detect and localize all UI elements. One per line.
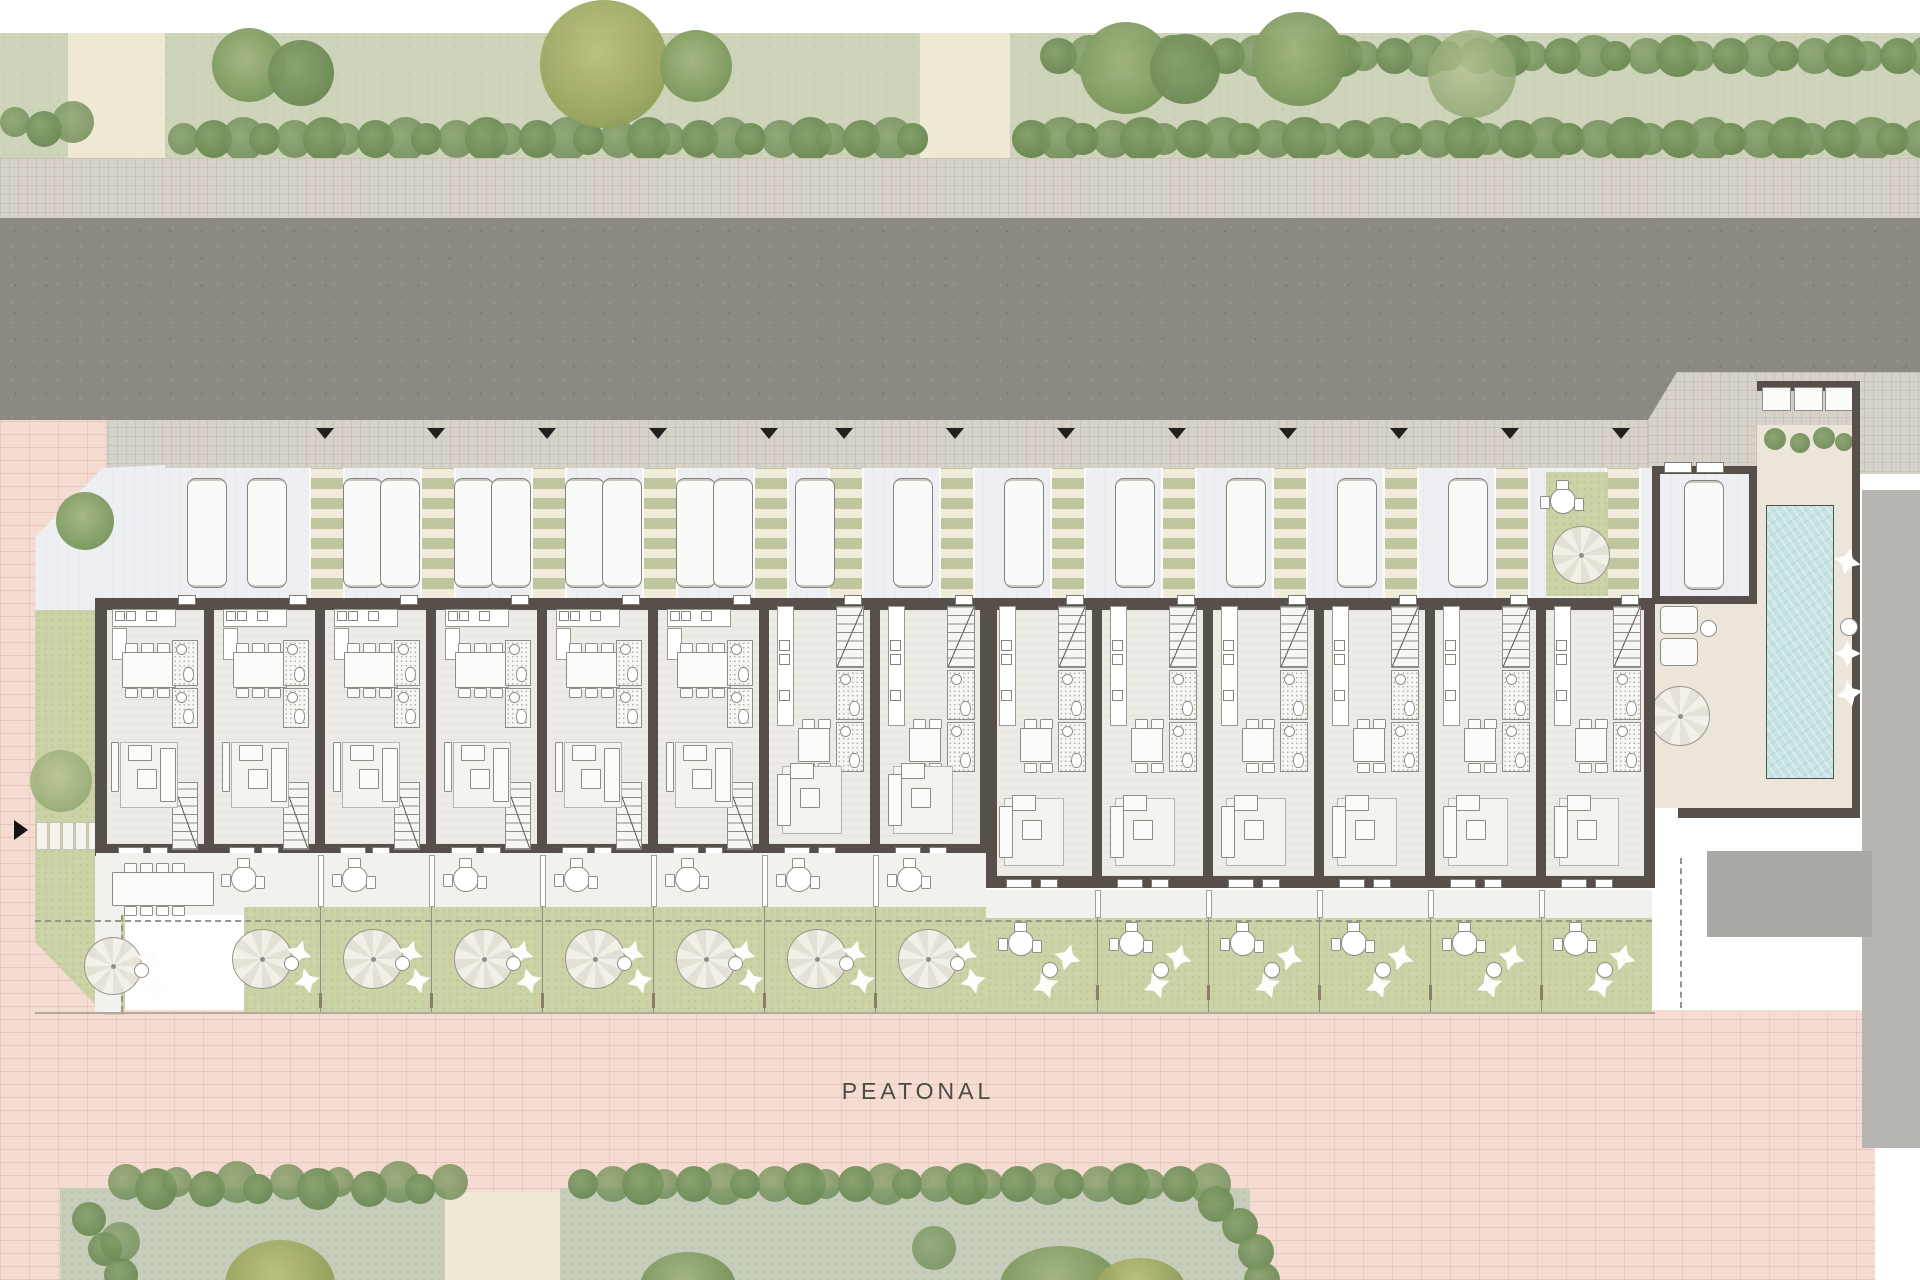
chair xyxy=(157,688,170,698)
side-lot xyxy=(1862,490,1920,1148)
chair xyxy=(124,863,137,873)
chair xyxy=(601,643,614,653)
chair xyxy=(1151,763,1164,773)
chair xyxy=(998,938,1008,951)
chair xyxy=(237,858,250,868)
chair xyxy=(712,643,725,653)
stepping-stone xyxy=(75,822,87,850)
terrace-divider xyxy=(1539,890,1545,918)
kitchen-counter xyxy=(999,606,1016,726)
hedge-bush xyxy=(1768,41,1799,72)
chair xyxy=(1254,940,1264,953)
basin xyxy=(287,644,298,655)
bistro-table xyxy=(342,866,368,892)
appliance xyxy=(779,690,790,701)
chair xyxy=(921,876,931,889)
chair xyxy=(366,876,376,889)
parasol xyxy=(676,929,736,989)
appliance xyxy=(890,690,901,701)
kitchen-counter xyxy=(1554,606,1571,726)
fence-post xyxy=(319,993,322,1008)
parking-walkway xyxy=(420,468,456,598)
chair xyxy=(1014,922,1027,932)
swimming-pool xyxy=(1766,505,1834,779)
entrance-marker-icon xyxy=(760,428,778,439)
chair xyxy=(1556,480,1569,490)
parasol xyxy=(1650,686,1710,746)
coffee-table xyxy=(581,769,601,789)
dining-table xyxy=(1242,728,1274,762)
hedge-bush xyxy=(1516,41,1547,72)
kitchen-counter xyxy=(1221,606,1238,726)
window xyxy=(1484,879,1502,888)
fence-post xyxy=(1540,985,1543,1000)
tv-sideboard xyxy=(444,742,452,792)
shrub xyxy=(1813,427,1835,449)
sink xyxy=(1223,654,1234,665)
north-footpath xyxy=(68,33,165,160)
parked-car xyxy=(1115,478,1155,588)
sink xyxy=(681,611,691,621)
bistro-table xyxy=(1119,930,1145,956)
parasol xyxy=(343,929,403,989)
chair xyxy=(236,688,249,698)
tree xyxy=(540,0,668,128)
ottoman xyxy=(950,956,965,971)
chair xyxy=(1540,496,1550,509)
chair xyxy=(156,906,169,916)
fence-post xyxy=(652,993,655,1008)
armchair xyxy=(790,763,814,779)
south-sidewalk xyxy=(0,418,1920,474)
window xyxy=(1117,879,1143,888)
cooktop xyxy=(1223,640,1234,651)
chair xyxy=(157,643,170,653)
basin xyxy=(176,692,187,703)
kitchen-counter xyxy=(1332,606,1349,726)
parked-car xyxy=(454,478,494,588)
party-wall xyxy=(1203,610,1213,876)
chair xyxy=(585,643,598,653)
entry-door xyxy=(622,595,640,605)
chair xyxy=(1365,940,1375,953)
toilet xyxy=(294,709,305,724)
chair xyxy=(802,719,815,729)
shrub xyxy=(1790,433,1810,453)
street-asphalt xyxy=(0,218,1920,420)
chair xyxy=(1135,719,1148,729)
chair xyxy=(268,643,281,653)
basin xyxy=(509,692,520,703)
chair xyxy=(443,874,453,887)
ottoman xyxy=(1042,962,1058,978)
ottoman xyxy=(839,956,854,971)
entrance-marker-icon xyxy=(316,428,334,439)
chair xyxy=(1331,938,1341,951)
chair xyxy=(252,688,265,698)
chair xyxy=(818,719,831,729)
parking-walkway xyxy=(531,468,567,598)
dining-table xyxy=(122,652,176,688)
sink xyxy=(126,611,136,621)
party-wall xyxy=(1425,610,1435,876)
stepping-stone xyxy=(49,822,61,850)
parked-car xyxy=(1004,478,1044,588)
stair-diagonal xyxy=(837,607,863,667)
chair xyxy=(810,876,820,889)
party-wall xyxy=(759,610,769,844)
sofa xyxy=(1443,806,1457,858)
sofa xyxy=(604,748,620,802)
chair xyxy=(363,643,376,653)
basin xyxy=(840,674,851,685)
toilet xyxy=(738,709,749,724)
coffee-table xyxy=(359,769,379,789)
dining-table xyxy=(1020,728,1052,762)
parked-car xyxy=(380,478,420,588)
stair-diagonal xyxy=(1170,607,1196,667)
parked-car xyxy=(247,478,287,588)
outdoor-dining-table xyxy=(112,872,214,906)
terrace-divider xyxy=(429,855,435,907)
appliance xyxy=(1001,690,1012,701)
party-wall xyxy=(315,610,325,844)
ramp xyxy=(1707,851,1872,937)
coffee-table xyxy=(248,769,268,789)
appliance xyxy=(1223,690,1234,701)
basin xyxy=(1062,674,1073,685)
site-plan: PEATONAL xyxy=(0,0,1920,1280)
chair xyxy=(477,876,487,889)
entrance-marker-icon xyxy=(946,428,964,439)
chair xyxy=(1553,938,1563,951)
basin xyxy=(398,692,409,703)
bistro-table xyxy=(1008,930,1034,956)
tv-sideboard xyxy=(111,742,119,792)
armchair xyxy=(1456,795,1480,811)
chair xyxy=(1143,940,1153,953)
stair-diagonal xyxy=(1392,607,1418,667)
tree xyxy=(1150,34,1220,104)
chair xyxy=(1032,940,1042,953)
toilet xyxy=(405,709,416,724)
tree xyxy=(30,750,92,812)
entry-door xyxy=(1621,595,1639,605)
bistro-table xyxy=(564,866,590,892)
ottoman xyxy=(1597,962,1613,978)
toilet xyxy=(849,701,860,716)
toilet xyxy=(1404,753,1415,768)
basin xyxy=(398,644,409,655)
chair xyxy=(680,688,693,698)
appliance xyxy=(1334,690,1345,701)
toilet xyxy=(1515,753,1526,768)
chair xyxy=(1442,938,1452,951)
stairs xyxy=(1169,606,1197,668)
coffee-table xyxy=(1355,820,1375,840)
chair xyxy=(1246,719,1259,729)
sink xyxy=(1556,654,1567,665)
kitchen-counter xyxy=(1110,606,1127,726)
toilet xyxy=(1071,701,1082,716)
toilet xyxy=(405,667,416,682)
chair xyxy=(1040,763,1053,773)
parked-car xyxy=(1684,480,1724,590)
kitchen-counter xyxy=(777,606,794,726)
sink xyxy=(348,611,358,621)
parked-car xyxy=(491,478,531,588)
toilet xyxy=(1515,701,1526,716)
sofa xyxy=(777,774,791,826)
party-wall xyxy=(426,610,436,844)
entrance-arrow-icon xyxy=(14,820,28,840)
appliance xyxy=(257,611,268,621)
chair xyxy=(363,688,376,698)
sink xyxy=(1445,654,1456,665)
sofa xyxy=(382,748,398,802)
cooktop xyxy=(1334,640,1345,651)
window xyxy=(1373,879,1391,888)
hedge-bush xyxy=(52,101,94,143)
entry-door xyxy=(733,595,751,605)
chair xyxy=(490,688,503,698)
chair xyxy=(221,874,231,887)
window xyxy=(1006,879,1032,888)
basin xyxy=(1284,726,1295,737)
chair xyxy=(1246,763,1259,773)
armchair xyxy=(1567,795,1591,811)
chair xyxy=(588,876,598,889)
toilet xyxy=(1293,701,1304,716)
chair xyxy=(1151,719,1164,729)
chair xyxy=(1125,922,1138,932)
appliance xyxy=(1556,690,1567,701)
parked-car xyxy=(1448,478,1488,588)
parking-walkway xyxy=(1494,468,1530,598)
sofa xyxy=(1332,806,1346,858)
bistro-table xyxy=(1563,930,1589,956)
window xyxy=(1262,879,1280,888)
hedge-bush xyxy=(897,123,928,154)
pool-wall xyxy=(1678,808,1860,818)
window xyxy=(1595,879,1613,888)
stairs xyxy=(1280,606,1308,668)
bistro-table xyxy=(1230,930,1256,956)
pool-wall xyxy=(1852,381,1860,818)
toilet xyxy=(1182,701,1193,716)
toilet xyxy=(1626,753,1637,768)
ottoman xyxy=(1375,962,1391,978)
fence-post xyxy=(541,993,544,1008)
planter-box xyxy=(1794,387,1823,411)
entrance-marker-icon xyxy=(1057,428,1075,439)
chair xyxy=(255,876,265,889)
window xyxy=(1040,879,1058,888)
window xyxy=(1228,879,1254,888)
chair xyxy=(680,643,693,653)
entrance-marker-icon xyxy=(1501,428,1519,439)
bistro-table xyxy=(1550,488,1576,514)
chair xyxy=(140,906,153,916)
basin xyxy=(176,644,187,655)
toilet xyxy=(960,701,971,716)
chair xyxy=(172,906,185,916)
entry-door xyxy=(511,595,529,605)
armchair xyxy=(1012,795,1036,811)
entrance-marker-icon xyxy=(1279,428,1297,439)
chair xyxy=(1262,763,1275,773)
toilet xyxy=(627,667,638,682)
entrance-marker-icon xyxy=(427,428,445,439)
sofa xyxy=(1110,806,1124,858)
armchair xyxy=(683,745,707,761)
toilet xyxy=(627,709,638,724)
parked-car xyxy=(795,478,835,588)
stair-diagonal xyxy=(1059,607,1085,667)
tv-sideboard xyxy=(333,742,341,792)
coffee-table xyxy=(911,788,931,808)
chair xyxy=(379,688,392,698)
party-wall xyxy=(870,610,880,844)
stairs xyxy=(1502,606,1530,668)
garden-edge xyxy=(35,1012,1655,1014)
chair xyxy=(459,858,472,868)
cooktop xyxy=(1556,640,1567,651)
toilet xyxy=(183,667,194,682)
chair xyxy=(1468,719,1481,729)
toilet xyxy=(960,753,971,768)
terrace-divider xyxy=(1428,890,1434,918)
chair xyxy=(601,688,614,698)
property-dashed-line xyxy=(1680,858,1682,1008)
entry-door xyxy=(1288,595,1306,605)
sofa xyxy=(1554,806,1568,858)
chair xyxy=(554,874,564,887)
kitchen-counter xyxy=(888,606,905,726)
parasol xyxy=(454,929,514,989)
chair xyxy=(792,858,805,868)
tv-sideboard xyxy=(666,742,674,792)
chair xyxy=(1484,763,1497,773)
chair xyxy=(236,643,249,653)
deck-side-table xyxy=(1840,618,1858,636)
hedge-bush xyxy=(1600,41,1631,72)
sofa xyxy=(160,748,176,802)
sofa xyxy=(1221,806,1235,858)
bistro-table xyxy=(1452,930,1478,956)
parked-car xyxy=(343,478,383,588)
cooktop xyxy=(1112,640,1123,651)
stairs xyxy=(947,606,975,668)
dining-table xyxy=(677,652,731,688)
toilet xyxy=(516,667,527,682)
chair xyxy=(569,688,582,698)
toilet xyxy=(294,667,305,682)
chair xyxy=(1574,498,1584,511)
cooktop xyxy=(890,640,901,651)
chair xyxy=(665,874,675,887)
stairs xyxy=(836,606,864,668)
entry-door xyxy=(1510,595,1528,605)
hedge-bush xyxy=(1348,41,1379,72)
ottoman xyxy=(1486,962,1502,978)
chair xyxy=(1262,719,1275,729)
parking-walkway xyxy=(309,468,345,598)
basin xyxy=(1284,674,1295,685)
basin xyxy=(731,692,742,703)
sink xyxy=(459,611,469,621)
terrace-divider xyxy=(873,855,879,907)
parking-walkway xyxy=(1161,468,1197,598)
terrace-divider xyxy=(540,855,546,907)
hedge-bush xyxy=(324,1167,354,1197)
chair xyxy=(1373,719,1386,729)
shrub xyxy=(1835,433,1853,451)
basin xyxy=(620,692,631,703)
stair-diagonal xyxy=(948,607,974,667)
appliance xyxy=(1445,690,1456,701)
hedge-bush xyxy=(72,1202,106,1236)
cooktop xyxy=(779,640,790,651)
chair xyxy=(458,643,471,653)
chair xyxy=(699,876,709,889)
entrance-marker-icon xyxy=(1390,428,1408,439)
entry-door xyxy=(955,595,973,605)
sink xyxy=(570,611,580,621)
coffee-table xyxy=(1244,820,1264,840)
armchair xyxy=(1345,795,1369,811)
ottoman xyxy=(728,956,743,971)
dining-table xyxy=(233,652,287,688)
tree xyxy=(56,492,114,550)
chair xyxy=(1024,763,1037,773)
chair xyxy=(140,863,153,873)
chair xyxy=(125,688,138,698)
basin xyxy=(1506,726,1517,737)
parking-walkway xyxy=(642,468,678,598)
entry-door xyxy=(1399,595,1417,605)
peatonal-street-label: PEATONAL xyxy=(818,1078,1018,1105)
appliance xyxy=(701,611,712,621)
chair xyxy=(681,858,694,868)
chair xyxy=(1587,940,1597,953)
fence-post xyxy=(1207,985,1210,1000)
north-footpath xyxy=(920,33,1010,160)
parking-walkway xyxy=(753,468,789,598)
ottoman xyxy=(1264,962,1280,978)
window xyxy=(1450,879,1476,888)
chair xyxy=(1468,763,1481,773)
chair xyxy=(124,906,137,916)
chair xyxy=(1347,922,1360,932)
toilet xyxy=(1626,701,1637,716)
chair xyxy=(1135,763,1148,773)
stepping-stone xyxy=(62,822,74,850)
chair xyxy=(929,719,942,729)
cooktop xyxy=(337,611,347,621)
sofa xyxy=(999,806,1013,858)
chair xyxy=(1220,938,1230,951)
hedge-bush xyxy=(432,1164,468,1200)
basin xyxy=(1617,674,1628,685)
basin xyxy=(1173,726,1184,737)
stairs xyxy=(1613,606,1641,668)
cooktop xyxy=(670,611,680,621)
window xyxy=(1339,879,1365,888)
sofa xyxy=(493,748,509,802)
ottoman xyxy=(395,956,410,971)
parasol xyxy=(787,929,847,989)
